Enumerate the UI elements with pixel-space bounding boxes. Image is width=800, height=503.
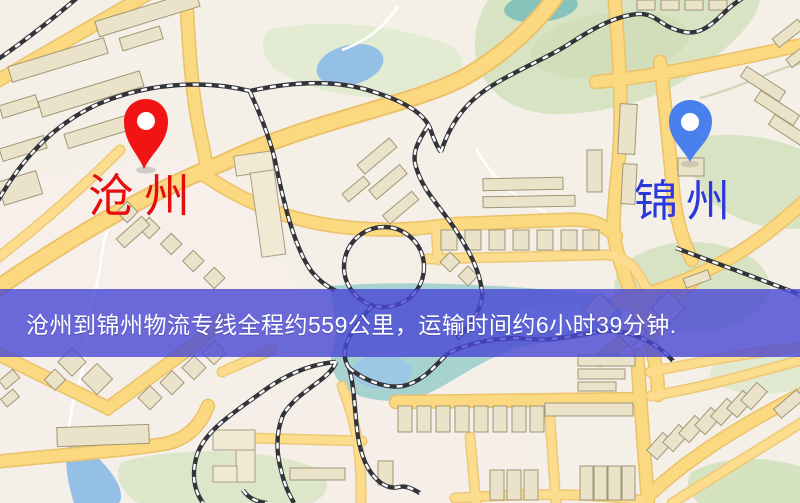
map-screenshot: 沧州 锦州 沧州到锦州物流专线全程约559公里，运输时间约6小时39分钟. xyxy=(0,0,800,503)
route-banner: 沧州到锦州物流专线全程约559公里，运输时间约6小时39分钟. xyxy=(0,289,800,357)
route-banner-text: 沧州到锦州物流专线全程约559公里，运输时间约6小时39分钟. xyxy=(0,306,677,340)
map-canvas xyxy=(0,0,800,503)
origin-city-label: 沧州 xyxy=(88,174,200,220)
destination-city-label: 锦州 xyxy=(634,180,738,224)
